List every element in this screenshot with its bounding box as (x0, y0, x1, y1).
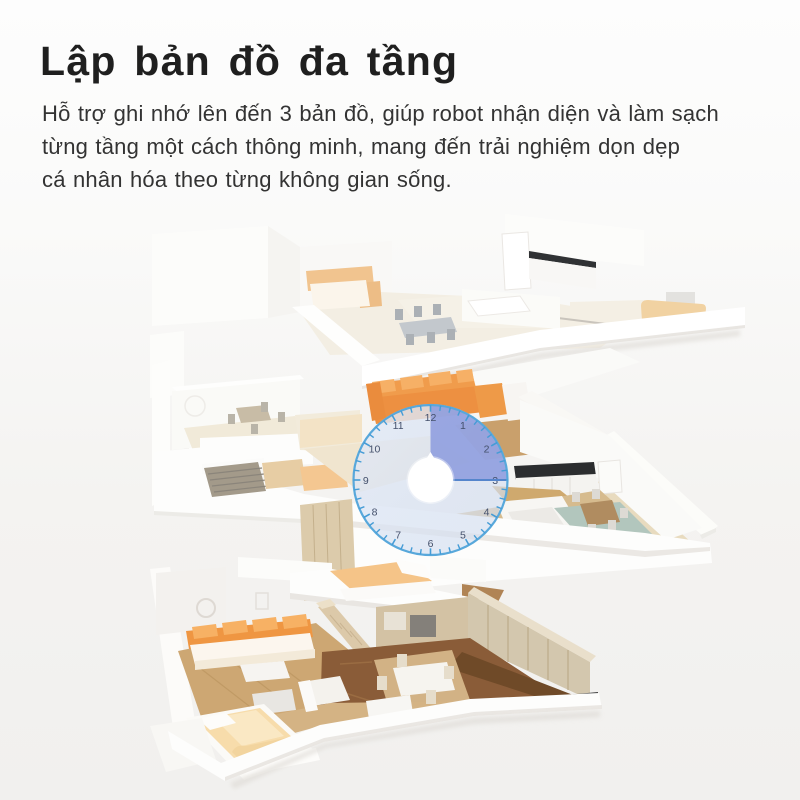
svg-text:6: 6 (428, 538, 434, 550)
svg-text:2: 2 (484, 443, 490, 455)
svg-text:8: 8 (372, 506, 378, 518)
svg-text:10: 10 (369, 443, 381, 455)
svg-text:5: 5 (460, 529, 466, 541)
svg-text:12: 12 (425, 412, 437, 424)
svg-text:7: 7 (395, 529, 401, 541)
svg-text:9: 9 (363, 475, 369, 487)
svg-text:4: 4 (484, 506, 490, 518)
svg-text:1: 1 (460, 420, 466, 432)
svg-text:11: 11 (393, 420, 404, 432)
